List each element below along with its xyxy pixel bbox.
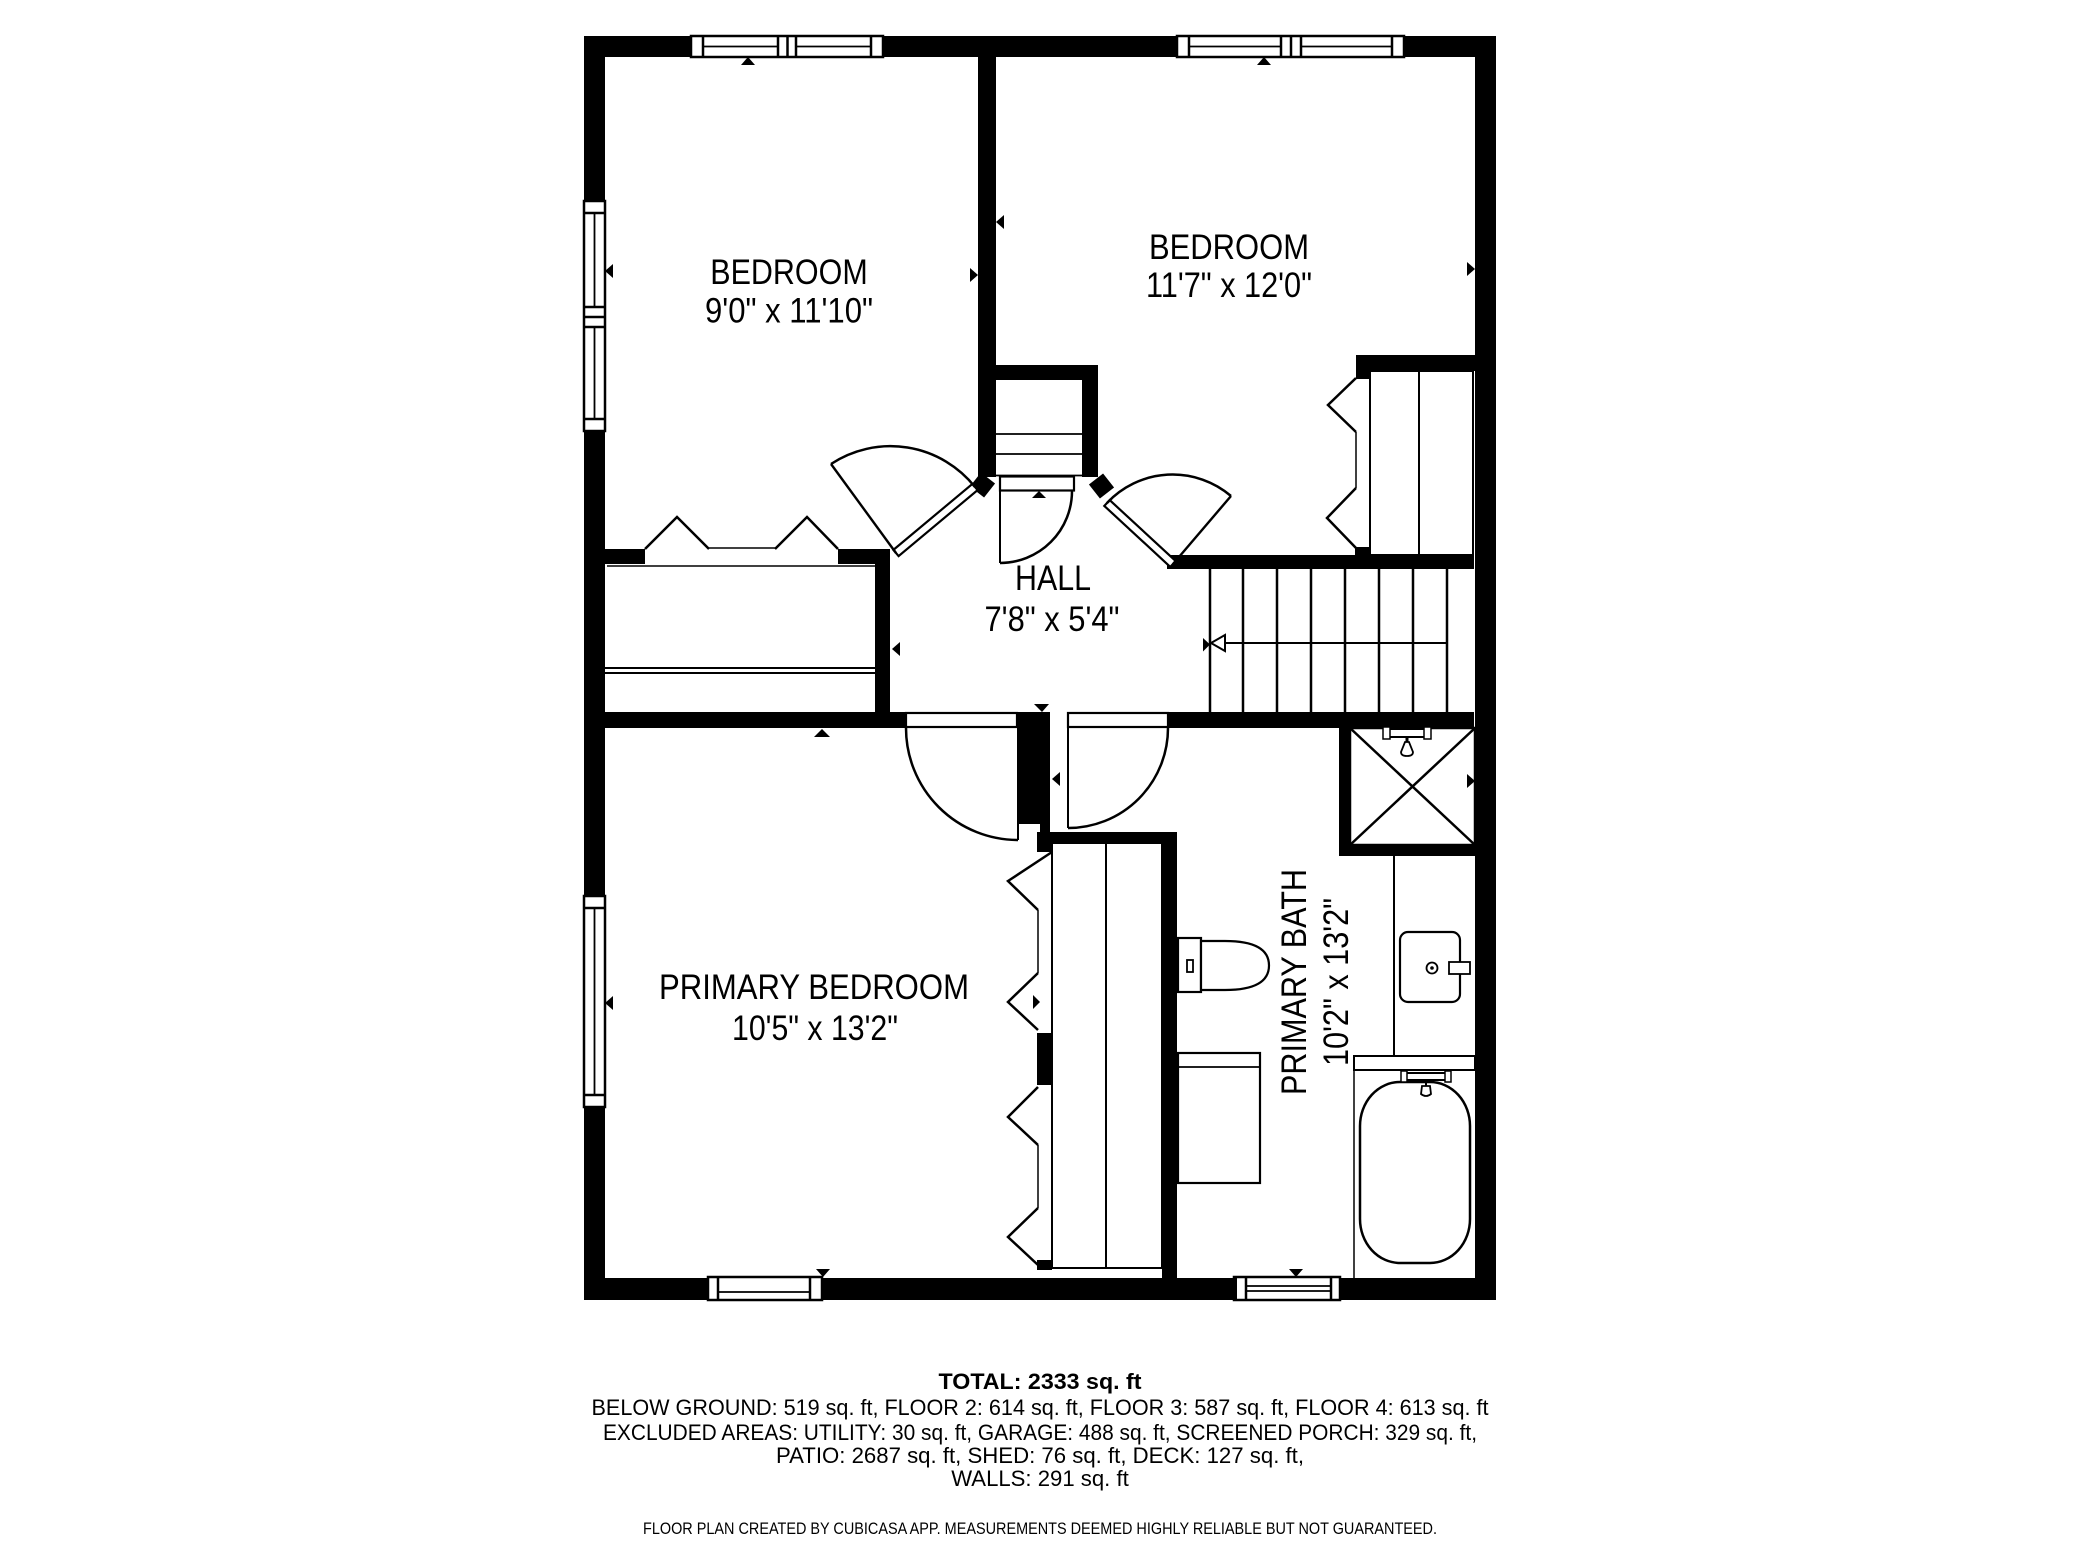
svg-text:TOTAL: 2333 sq. ft: TOTAL: 2333 sq. ft [939,1369,1143,1394]
svg-text:HALL: HALL [1015,559,1091,598]
svg-text:10'5" x 13'2": 10'5" x 13'2" [732,1009,898,1048]
svg-text:BEDROOM: BEDROOM [1149,228,1309,267]
svg-text:BELOW GROUND: 519 sq. ft, FLOO: BELOW GROUND: 519 sq. ft, FLOOR 2: 614 s… [592,1395,1490,1420]
svg-text:PRIMARY BEDROOM: PRIMARY BEDROOM [659,968,969,1007]
svg-text:WALLS: 291 sq. ft: WALLS: 291 sq. ft [951,1466,1129,1491]
svg-text:EXCLUDED AREAS: UTILITY: 30 sq: EXCLUDED AREAS: UTILITY: 30 sq. ft, GARA… [603,1420,1477,1445]
svg-text:10'2" x 13'2": 10'2" x 13'2" [1317,898,1356,1066]
svg-text:PATIO: 2687 sq. ft, SHED: 76 s: PATIO: 2687 sq. ft, SHED: 76 sq. ft, DEC… [776,1443,1304,1468]
svg-text:9'0" x 11'10": 9'0" x 11'10" [705,292,873,331]
svg-text:BEDROOM: BEDROOM [710,253,868,292]
svg-text:7'8" x 5'4": 7'8" x 5'4" [985,600,1120,639]
svg-text:PRIMARY BATH: PRIMARY BATH [1275,869,1314,1095]
svg-text:11'7" x 12'0": 11'7" x 12'0" [1146,266,1312,305]
svg-text:FLOOR PLAN CREATED BY CUBICASA: FLOOR PLAN CREATED BY CUBICASA APP. MEAS… [643,1519,1437,1538]
